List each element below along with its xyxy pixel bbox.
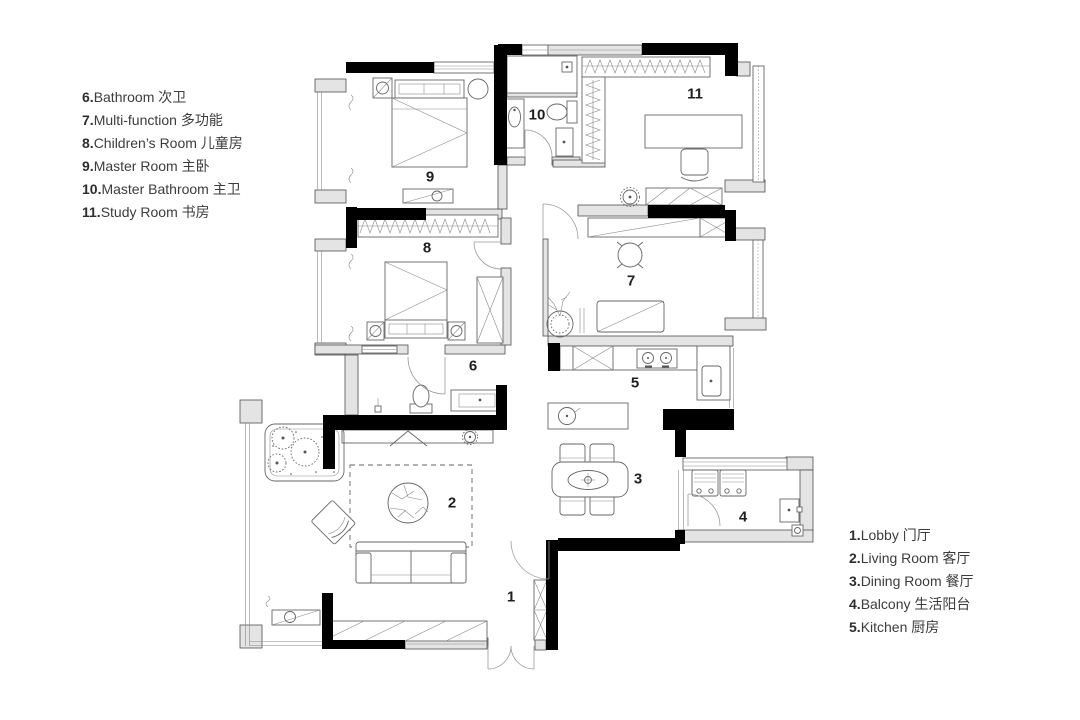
legend-item-kitchen: 5.Kitchen 厨房 [849, 616, 974, 639]
room-label-master: 9 [426, 169, 434, 186]
legend-number: 3. [849, 573, 861, 589]
room-label-dining: 3 [634, 471, 642, 488]
legend-item-living: 2.Living Room 客厅 [849, 547, 974, 570]
study-furniture [621, 115, 743, 207]
childrens-room-furniture [358, 215, 503, 343]
legend-number: 6. [82, 89, 94, 105]
legend-item-bathroom: 6.Bathroom 次卫 [82, 86, 243, 109]
legend-label: Multi-function 多功能 [94, 112, 223, 128]
room-label-multifunction: 7 [627, 273, 635, 290]
room-label-bathroom: 6 [469, 358, 477, 375]
legend-item-study: 11.Study Room 书房 [82, 201, 243, 224]
legend-number: 11. [82, 204, 101, 220]
legend-label: Lobby 门厅 [861, 527, 931, 543]
legend-label: Kitchen 厨房 [861, 619, 940, 635]
legend-number: 1. [849, 527, 861, 543]
legend-number: 4. [849, 596, 861, 612]
legend-item-dining: 3.Dining Room 餐厅 [849, 570, 974, 593]
legend-right: 1.Lobby 门厅 2.Living Room 客厅 3.Dining Roo… [849, 524, 974, 639]
legend-item-balcony: 4.Balcony 生活阳台 [849, 593, 974, 616]
legend-item-children: 8.Children’s Room 儿童房 [82, 132, 243, 155]
legend-label: Master Bathroom 主卫 [101, 181, 240, 197]
legend-label: Living Room 客厅 [861, 550, 971, 566]
room-label-kitchen: 5 [631, 375, 639, 392]
multifunction-furniture [547, 218, 733, 337]
room-label-children: 8 [423, 240, 431, 257]
room-label-living: 2 [448, 495, 456, 512]
bathroom-fixtures [375, 385, 503, 413]
legend-label: Study Room 书房 [101, 204, 210, 220]
legend-item-lobby: 1.Lobby 门厅 [849, 524, 974, 547]
balcony-fixtures [692, 470, 803, 536]
lobby-furniture [534, 580, 547, 640]
legend-left: 6.Bathroom 次卫 7.Multi-function 多功能 8.Chi… [82, 86, 243, 224]
legend-item-master-bath: 10.Master Bathroom 主卫 [82, 178, 243, 201]
legend-number: 10. [82, 181, 101, 197]
room-label-master-bath: 10 [529, 107, 546, 124]
legend-number: 5. [849, 619, 861, 635]
legend-item-master: 9.Master Room 主卧 [82, 155, 243, 178]
legend-label: Balcony 生活阳台 [861, 596, 971, 612]
legend-label: Children’s Room 儿童房 [94, 135, 243, 151]
room-label-balcony: 4 [739, 509, 747, 526]
legend-item-multifunction: 7.Multi-function 多功能 [82, 109, 243, 132]
legend-number: 9. [82, 158, 94, 174]
legend-label: Dining Room 餐厅 [861, 573, 974, 589]
legend-number: 7. [82, 112, 94, 128]
room-label-study: 11 [687, 86, 703, 103]
floorplan-page: 1 2 3 4 5 6 7 8 9 10 11 6.Bathroom 次卫 7.… [0, 0, 1080, 720]
legend-label: Bathroom 次卫 [94, 89, 187, 105]
room-label-lobby: 1 [507, 589, 515, 606]
living-room-furniture [272, 430, 493, 642]
dining-furniture [552, 444, 628, 515]
legend-label: Master Room 主卧 [94, 158, 210, 174]
legend-number: 8. [82, 135, 94, 151]
legend-number: 2. [849, 550, 861, 566]
